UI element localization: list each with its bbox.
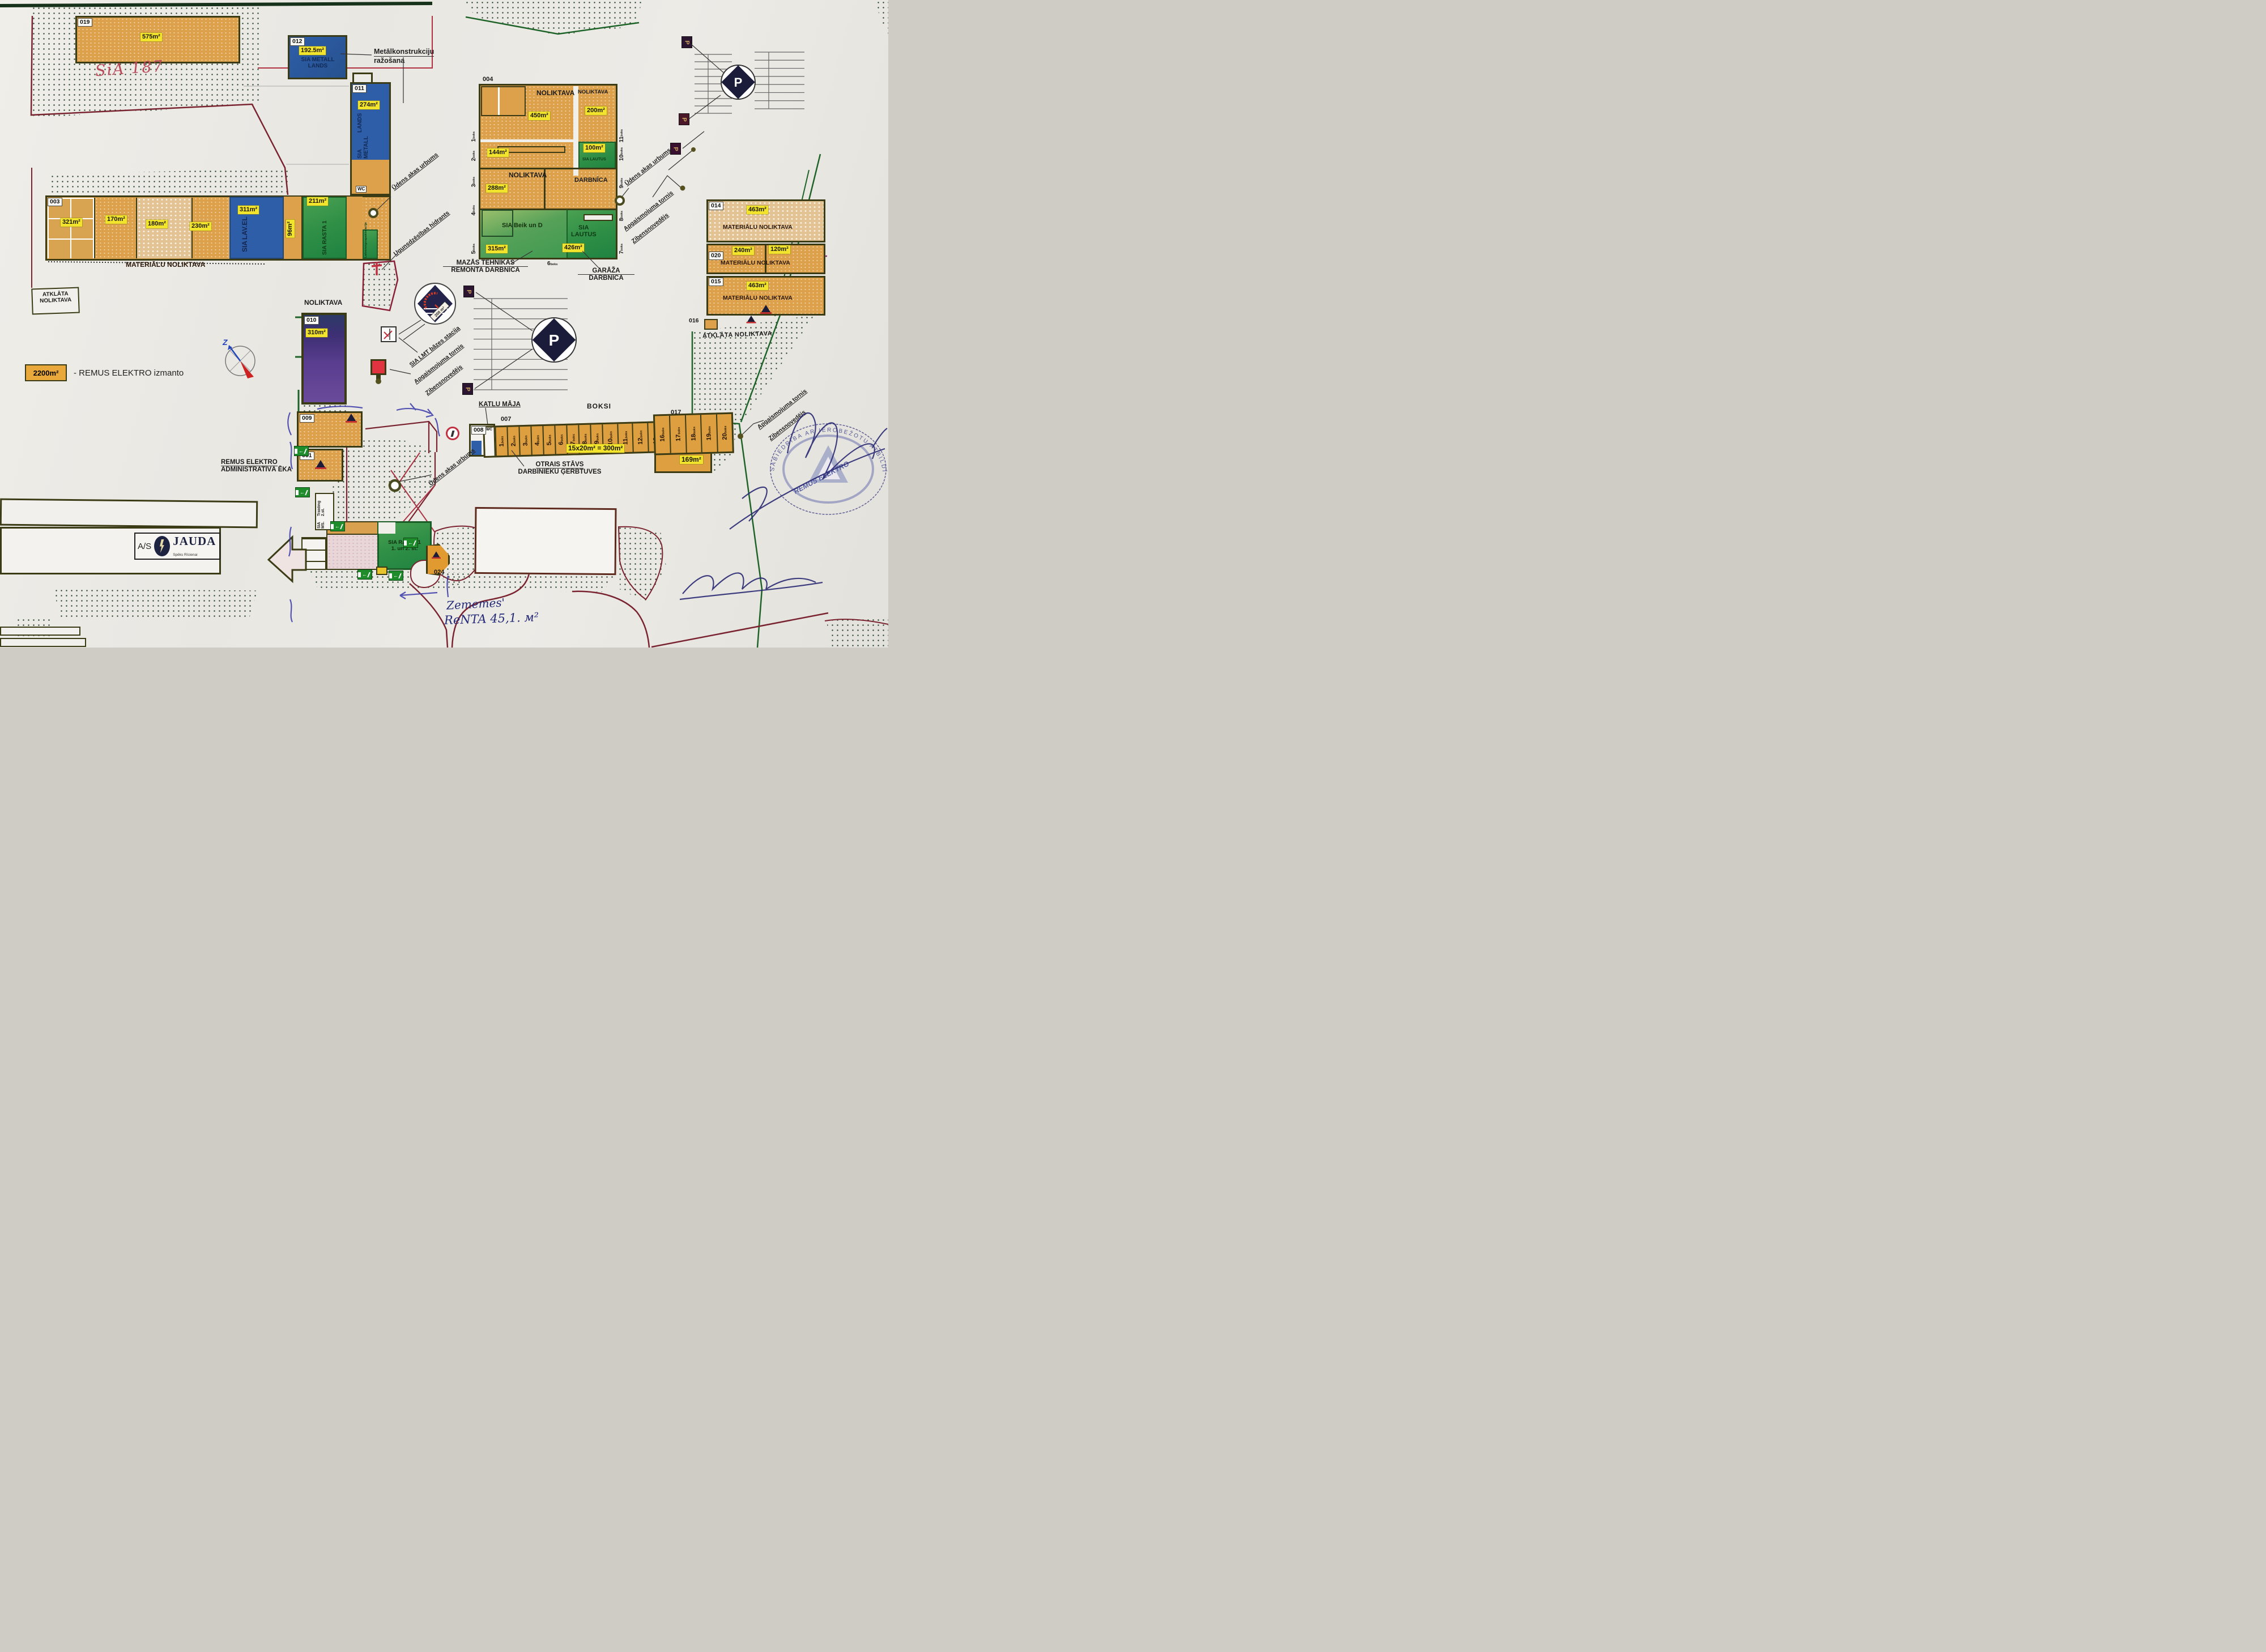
dotted-courtyard <box>331 438 436 520</box>
small-yellow-marker <box>376 567 387 575</box>
boks-cell-6: 6boks <box>554 425 566 454</box>
exit-sign-5: ← <box>389 570 403 581</box>
exit-sign-2: ← <box>295 487 310 497</box>
dotted-strip-bottom-left <box>54 588 258 619</box>
sia-rasta-notch <box>378 522 395 534</box>
handwriting-renta: ReNTA 45,1. м² <box>444 610 539 627</box>
building-007-tag: 007 <box>501 416 511 423</box>
jauda-name: JAUDA <box>173 534 216 548</box>
warning-triangle-right-2 <box>747 316 755 322</box>
building-012-area: 192.5m² <box>299 46 326 55</box>
building-004-noliktava-3: NOLIKTAVA <box>509 171 547 179</box>
jauda-name-block: JAUDA Spēks Rīcienai <box>173 534 216 559</box>
building-004-area-144: 144m² <box>487 148 509 157</box>
complex-left-rooms <box>301 537 326 570</box>
boks-cell-12: 12boks <box>632 423 648 452</box>
building-016-tag: 016 <box>689 317 699 324</box>
building-004-darbnica: DARBNĪCA <box>574 177 608 184</box>
building-012-name: SIA METALLLANDS <box>289 57 346 69</box>
label-remus-admin: REMUS ELEKTRO ADMINISTRATĪVĀ ĒKA <box>221 459 292 473</box>
svg-text:P: P <box>734 75 743 90</box>
building-012-tag: 012 <box>290 37 305 46</box>
lmt-station-stem <box>376 375 381 380</box>
dotted-right-of-white-building <box>617 526 666 602</box>
label-udens-1: Ūdens akas urbums <box>391 151 440 191</box>
gate-arrow <box>269 537 306 581</box>
boks-cell-17: 17boks <box>669 415 685 453</box>
building-015-caption: MATERIĀLU NOLIKTAVA <box>723 295 793 301</box>
parking-comb-top-right-a <box>695 54 732 113</box>
building-010-area: 310m² <box>306 329 327 337</box>
base-station-icon <box>381 326 397 342</box>
thin-strip-2 <box>0 638 86 647</box>
sia-ms-label: SIA MS.Traiding 2.st. <box>317 495 325 529</box>
no-entry-figure <box>451 431 455 437</box>
label-udens-3: Ūdens akas urbums <box>428 447 476 487</box>
label-garaza: GARĀŽADARBNĪCA <box>578 267 634 282</box>
white-building <box>474 507 616 575</box>
boks-cell-3: 3boks <box>518 427 531 455</box>
building-003-area-170: 170m² <box>105 215 127 224</box>
complex-pink-room <box>326 534 378 570</box>
svg-text:Z: Z <box>222 338 228 347</box>
label-metalkonstrukciju: Metālkonstrukciju ražošana <box>374 48 434 65</box>
building-003-green-name: SIA RASTA 1 <box>322 212 328 255</box>
boks-cell-19: 19boks <box>700 415 717 453</box>
warning-triangle-009 <box>347 414 356 421</box>
warning-triangle-right-1 <box>761 305 770 312</box>
parking-comb-center <box>474 299 568 390</box>
building-020-divider <box>765 244 766 274</box>
boksi-size-chip: 15x20m² = 300m² <box>566 444 624 453</box>
building-011-wc: WC <box>356 186 367 193</box>
building-009-tag: 009 <box>300 414 314 423</box>
building-020-area-120: 120m² <box>769 245 790 254</box>
building-011-area: 274m² <box>358 101 380 109</box>
boks-label-2: 2boks <box>471 151 477 161</box>
dotted-hydrant-area-2 <box>361 262 397 312</box>
building-004-noliktava-1: NOLIKTAVA <box>536 89 574 97</box>
building-008-tag: 008 <box>471 426 486 435</box>
no-entry-sign <box>446 427 459 440</box>
boks-cell-18: 18boks <box>685 415 701 453</box>
dotted-area-top-right <box>465 0 642 35</box>
handwriting-zememes: Zememes' <box>446 595 505 612</box>
building-004-area-200: 200m² <box>585 107 607 115</box>
building-004-tag: 004 <box>483 76 493 83</box>
building-004-area-426: 426m² <box>563 244 584 252</box>
building-003-blue-name: SIALAV.EL <box>241 210 249 252</box>
building-003-tag: 003 <box>48 198 62 206</box>
jauda-logo-box: A/S JAUDA Spēks Rīcienai <box>134 533 220 560</box>
label-otrais-stavs: OTRAIS STĀVS DARBINIEKU ĢERBTUVES <box>509 461 611 475</box>
boks-cell-1: 1boks <box>495 427 507 456</box>
boksi-row-017: 16boks17boks18boks19boks20boks <box>653 412 734 455</box>
boks-cell-5: 5boks <box>542 425 555 454</box>
building-003-area-96: 96m² <box>286 220 295 238</box>
parking-sign-top-right-1: P <box>681 36 692 48</box>
building-003-orange-strip <box>347 197 363 259</box>
building-004-area-100: 100m² <box>583 144 605 152</box>
boks-label-8: 8boks <box>619 211 625 221</box>
building-003-area-321: 321m² <box>61 218 82 227</box>
svg-text:REMUS ELEKTRO: REMUS ELEKTRO <box>793 459 850 495</box>
building-020-area-240: 240m² <box>732 246 754 255</box>
atklata-left-label: ATKLĀTANOLIKTAVA <box>35 291 76 304</box>
building-011-tag: 011 <box>352 84 367 93</box>
legend-label: - REMUS ELEKTRO izmanto <box>74 368 184 378</box>
building-003-area-180: 180m² <box>146 220 168 228</box>
building-003-substation-label: Latvenergoapakšstacija <box>364 231 368 258</box>
building-003-area-230: 230m² <box>190 222 211 231</box>
building-003-area-211: 211m² <box>307 197 328 206</box>
label-udens-2: Ūdens akas urbums <box>624 147 672 187</box>
building-004-lautus-100-name: SIA LAUTUS <box>582 157 606 161</box>
building-010 <box>301 313 347 405</box>
building-015-area: 463m² <box>747 282 768 290</box>
dotted-bottom-right <box>825 618 888 648</box>
building-003-left-rooms <box>48 198 95 258</box>
building-017-area: 169m² <box>680 455 703 464</box>
boks-label-4: 4boks <box>471 205 477 215</box>
building-003-caption: MATERIĀLU NOLIKTAVA <box>126 261 205 269</box>
building-003-area-311: 311m² <box>238 206 259 214</box>
legend-area-chip: 2200m² <box>25 364 67 381</box>
jauda-tagline: Spēks Rīcienai <box>173 553 197 557</box>
boks-label-9: 9boks <box>619 178 625 188</box>
boksi-wc-cell: WC <box>484 427 495 455</box>
label-boksi: BOKSI <box>587 402 611 410</box>
dotted-corner-right <box>876 0 888 34</box>
site-plan-scan: 019 575m² SiA 187 012 192.5m² SIA METALL… <box>0 0 888 648</box>
svg-text:P: P <box>549 331 560 349</box>
dotted-band-above-003 <box>50 169 288 196</box>
boks-label-10: 10boks <box>619 147 625 161</box>
building-020-caption: MATERIĀLU NOLIKTAVA <box>721 259 790 266</box>
label-mazas-tehnikas: MAZĀS TEHNIKASREMONTA DARBNĪCA <box>443 259 528 274</box>
building-016 <box>704 319 718 330</box>
boks-label-5: 5boks <box>471 244 477 254</box>
building-004-hline <box>480 168 616 169</box>
exit-sign-6: ← <box>357 569 372 580</box>
svg-text:200 m³: 200 m³ <box>434 306 446 318</box>
building-004-noliktava-2: NOLIKTAVA <box>578 89 608 95</box>
building-004-lautus2-name: SIALAUTUS <box>571 224 597 238</box>
boks-label-6: 6boks <box>547 261 557 267</box>
boks-label-1: 1boks <box>471 131 477 142</box>
building-004-col-gap <box>573 86 578 176</box>
building-019-area: 575m² <box>140 33 162 41</box>
building-014-area: 463m² <box>747 206 768 214</box>
boks-cell-4: 4boks <box>530 426 543 455</box>
building-004-area-315: 315m² <box>486 245 508 253</box>
jauda-logo-icon <box>154 536 170 556</box>
exit-sign-3: ← <box>330 521 345 531</box>
parking-sign-center-2: P <box>462 383 473 395</box>
parking-sign-top-right-2: P <box>679 113 689 125</box>
compass-icon: Z <box>222 338 255 378</box>
building-020-tag: 020 <box>709 252 723 260</box>
jauda-prefix: A/S <box>138 542 151 551</box>
label-noliktava-010: NOLIKTAVA <box>304 299 342 306</box>
label-hidrants: Ugunsdzēsības hidrants <box>393 210 451 257</box>
boks-cell-16: 16boks <box>655 416 670 454</box>
building-004-lautus-slot <box>583 214 613 221</box>
building-010-tag: 010 <box>304 316 319 325</box>
building-014-caption: MATERIĀLU NOLIKTAVA <box>723 224 793 231</box>
building-019-tag: 019 <box>78 18 92 27</box>
road-strip-left <box>0 499 258 529</box>
building-024-tag: 024 <box>434 569 444 576</box>
warning-triangle-001 <box>316 460 325 467</box>
boks-cell-2: 2boks <box>506 427 519 455</box>
exit-sign-4: ← <box>403 538 418 548</box>
boks-cell-20: 20boks <box>716 414 732 452</box>
building-011-name: SIA METALLLANDS <box>357 113 369 159</box>
warning-triangle-rasta <box>433 551 440 557</box>
building-004-area-450: 450m² <box>529 112 550 120</box>
parking-sign-center-1: P <box>463 286 474 297</box>
parking-sign-mid-right: P <box>670 143 681 155</box>
boks-label-11: 11boks <box>619 129 625 142</box>
boks-label-7: 7boks <box>619 244 625 254</box>
boks-label-3: 3boks <box>471 177 477 187</box>
building-014-tag: 014 <box>709 202 723 210</box>
building-004-top-rooms <box>481 86 526 116</box>
thin-strip-1 <box>0 627 80 636</box>
parking-comb-top-right-b <box>755 52 804 109</box>
building-004-beik-name: SIA Beik un D <box>502 222 543 229</box>
building-004-area-288: 288m² <box>486 184 508 193</box>
label-katlu-maja: KATLU MĀJA <box>479 401 521 408</box>
building-015-tag: 015 <box>709 278 723 286</box>
building-004-mid-gap <box>480 139 574 142</box>
exit-sign-1: ← <box>294 446 309 456</box>
building-017-tag: 017 <box>671 409 681 416</box>
lmt-base-station <box>370 359 386 375</box>
